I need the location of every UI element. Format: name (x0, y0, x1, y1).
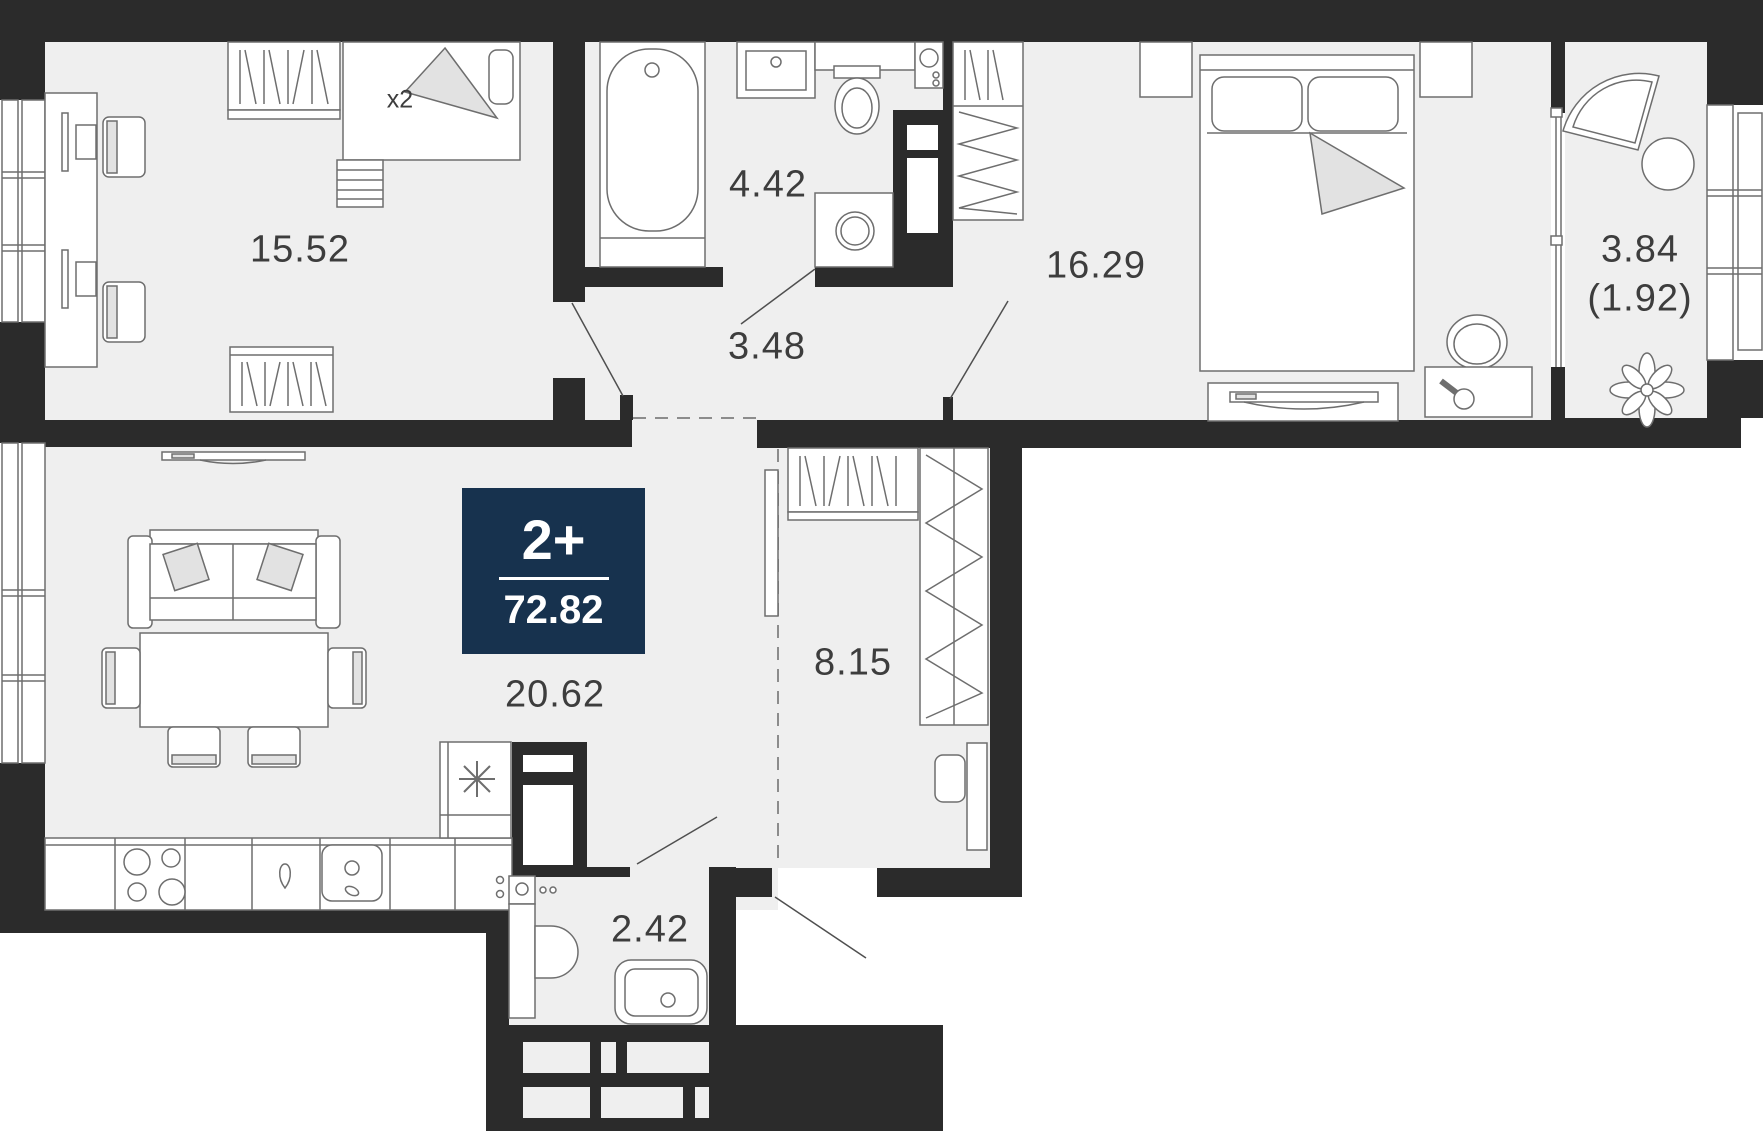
kitchen-counter (45, 838, 512, 910)
apartment-badge: 2+ 72.82 (462, 488, 645, 654)
badge-total-area: 72.82 (503, 590, 603, 630)
badge-room-count: 2+ (522, 512, 586, 568)
hinge-dot (497, 891, 504, 898)
dining-chair (168, 727, 220, 767)
bathtub (600, 42, 705, 267)
fridge (440, 742, 511, 838)
balcony-glass-door (1551, 108, 1562, 367)
area-label-living-kitchen: 20.62 (505, 674, 605, 717)
floor-plan-drawing (0, 0, 1763, 1135)
floor-plan: 15.52 x2 4.42 3.48 16.29 3.84 (1.92) 20.… (0, 0, 1763, 1135)
window-balcony (1707, 105, 1762, 360)
water-heater (915, 42, 943, 88)
bathroom-sink (737, 42, 815, 98)
dining-table (140, 633, 328, 727)
washing-machine (815, 193, 893, 267)
wardrobe (228, 42, 340, 119)
area-label-bedroom: 16.29 (1046, 245, 1146, 288)
wardrobe (953, 42, 1023, 220)
side-table (1642, 138, 1694, 190)
area-label-balcony: 3.84 (1601, 229, 1679, 272)
bunk-bed-note: x2 (387, 86, 413, 115)
open-door-leaf (765, 470, 778, 616)
desk-chair (103, 117, 145, 177)
area-label-wc: 2.42 (611, 909, 689, 952)
desk-chair (103, 282, 145, 342)
entrance-door-swing (775, 897, 866, 958)
kitchen-sink (322, 845, 382, 901)
wardrobe (230, 347, 333, 412)
tv-dresser (1208, 383, 1398, 421)
dining-chair (328, 648, 366, 708)
wardrobe (920, 448, 988, 725)
double-bed (1200, 55, 1414, 371)
nightstand (1420, 42, 1472, 97)
nightstand (1140, 42, 1192, 97)
area-label-corridor: 8.15 (814, 642, 892, 685)
area-label-children-room: 15.52 (250, 229, 350, 272)
desk-with-monitors (45, 93, 97, 367)
area-label-hallway: 3.48 (728, 326, 806, 369)
shower-tray (615, 960, 707, 1024)
window-living-room (2, 443, 45, 763)
area-label-balcony-reduced: (1.92) (1587, 278, 1692, 321)
bunk-bed (343, 42, 520, 160)
area-label-bathroom: 4.42 (729, 164, 807, 207)
wardrobe (788, 448, 918, 520)
badge-divider (499, 577, 609, 580)
sofa (128, 530, 340, 628)
snowflake-icon (459, 761, 495, 797)
hinge-dot (497, 877, 504, 884)
window-children-room (2, 100, 45, 322)
bunk-bed-ladder (337, 160, 383, 207)
dining-chair (248, 727, 300, 767)
dining-chair (102, 648, 140, 708)
